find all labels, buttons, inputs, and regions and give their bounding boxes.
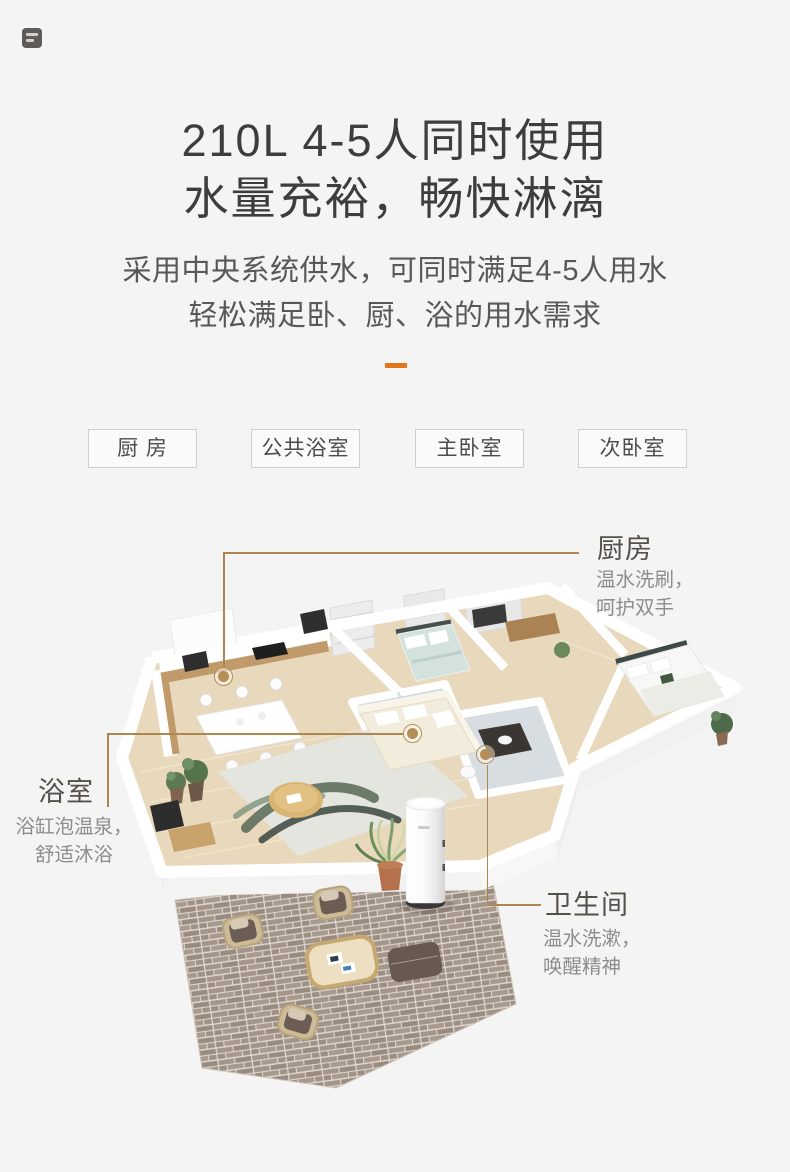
- bathroom-annotation-body: 浴缸泡温泉， 舒适沐浴: [12, 813, 136, 869]
- toilet-annotation-body: 温水洗漱， 唤醒精神: [543, 925, 641, 981]
- bathroom-annotation-title: 浴室: [38, 777, 94, 808]
- kitchen-connector-vline: [223, 552, 225, 667]
- toilet-connector-hline: [487, 904, 541, 906]
- bathroom-connector-vline: [107, 733, 109, 807]
- kitchen-connector-hline: [223, 552, 579, 554]
- kitchen-annotation-body: 温水洗刷， 呵护双手: [596, 566, 694, 622]
- product-detail-page: 210L 4-5人同时使用 水量充裕，畅快淋漓 采用中央系统供水，可同时满足4-…: [0, 0, 790, 1172]
- kitchen-annotation-title: 厨房: [597, 534, 653, 565]
- toilet-annotation-title: 卫生间: [545, 890, 629, 921]
- bathroom-connector-hline: [107, 733, 403, 735]
- toilet-connector-vline: [487, 765, 489, 905]
